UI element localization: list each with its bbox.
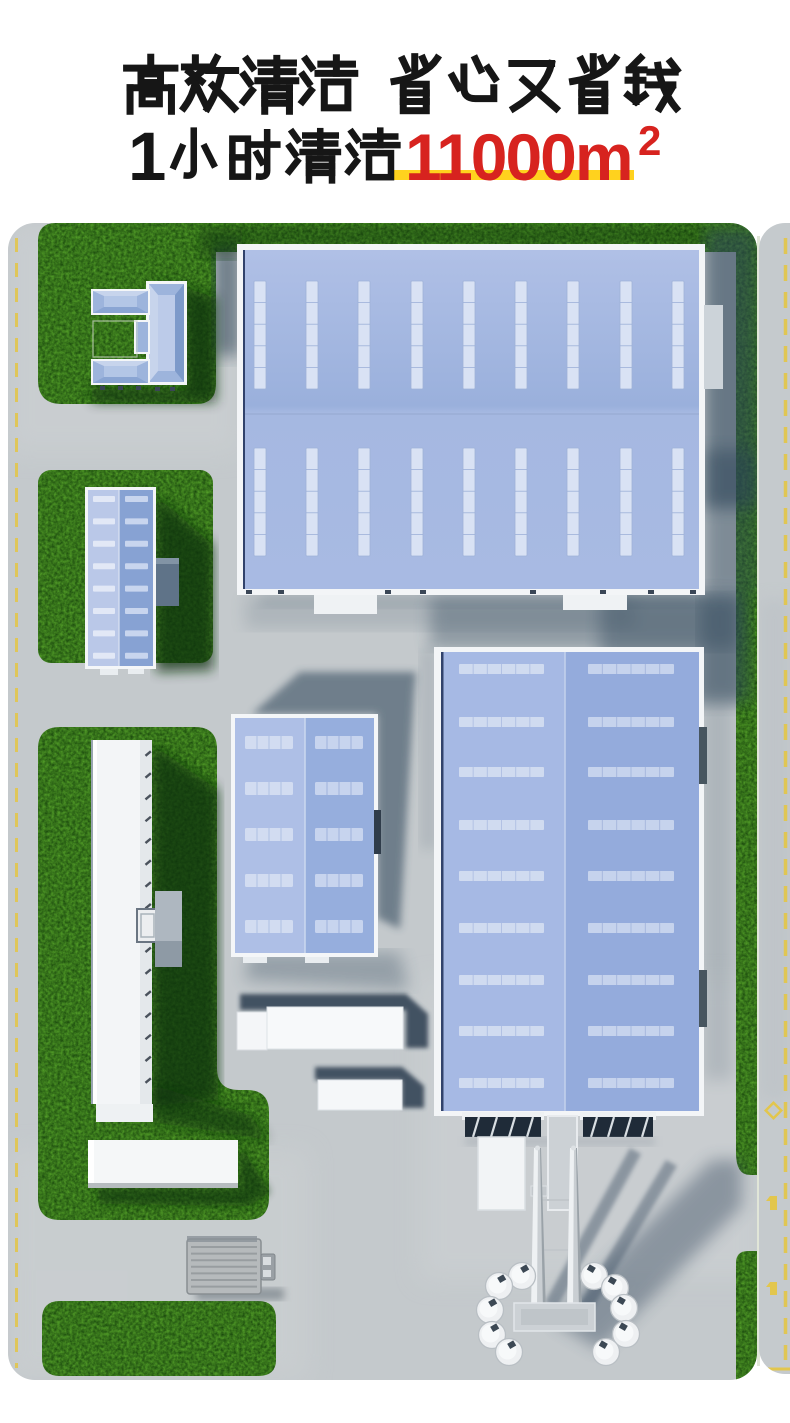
svg-text:1: 1: [128, 118, 166, 195]
svg-text:2: 2: [638, 117, 661, 164]
svg-text:11000m: 11000m: [405, 120, 632, 194]
